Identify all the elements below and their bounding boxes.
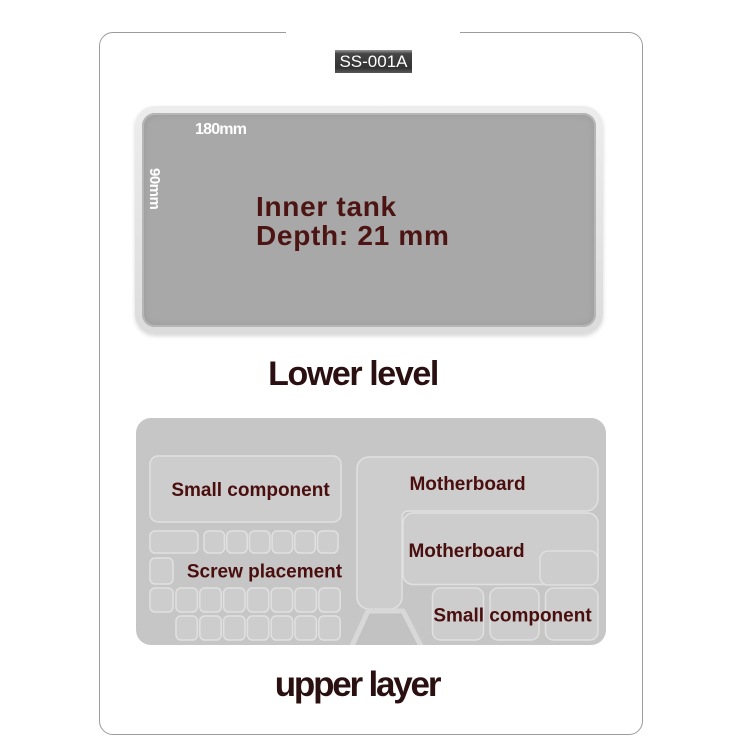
svg-text:Small component: Small component <box>171 480 330 501</box>
svg-text:Small component: Small component <box>433 606 592 627</box>
svg-text:Motherboard: Motherboard <box>409 474 525 495</box>
svg-text:Screw placement: Screw placement <box>187 562 343 583</box>
svg-text:Motherboard: Motherboard <box>408 541 524 562</box>
